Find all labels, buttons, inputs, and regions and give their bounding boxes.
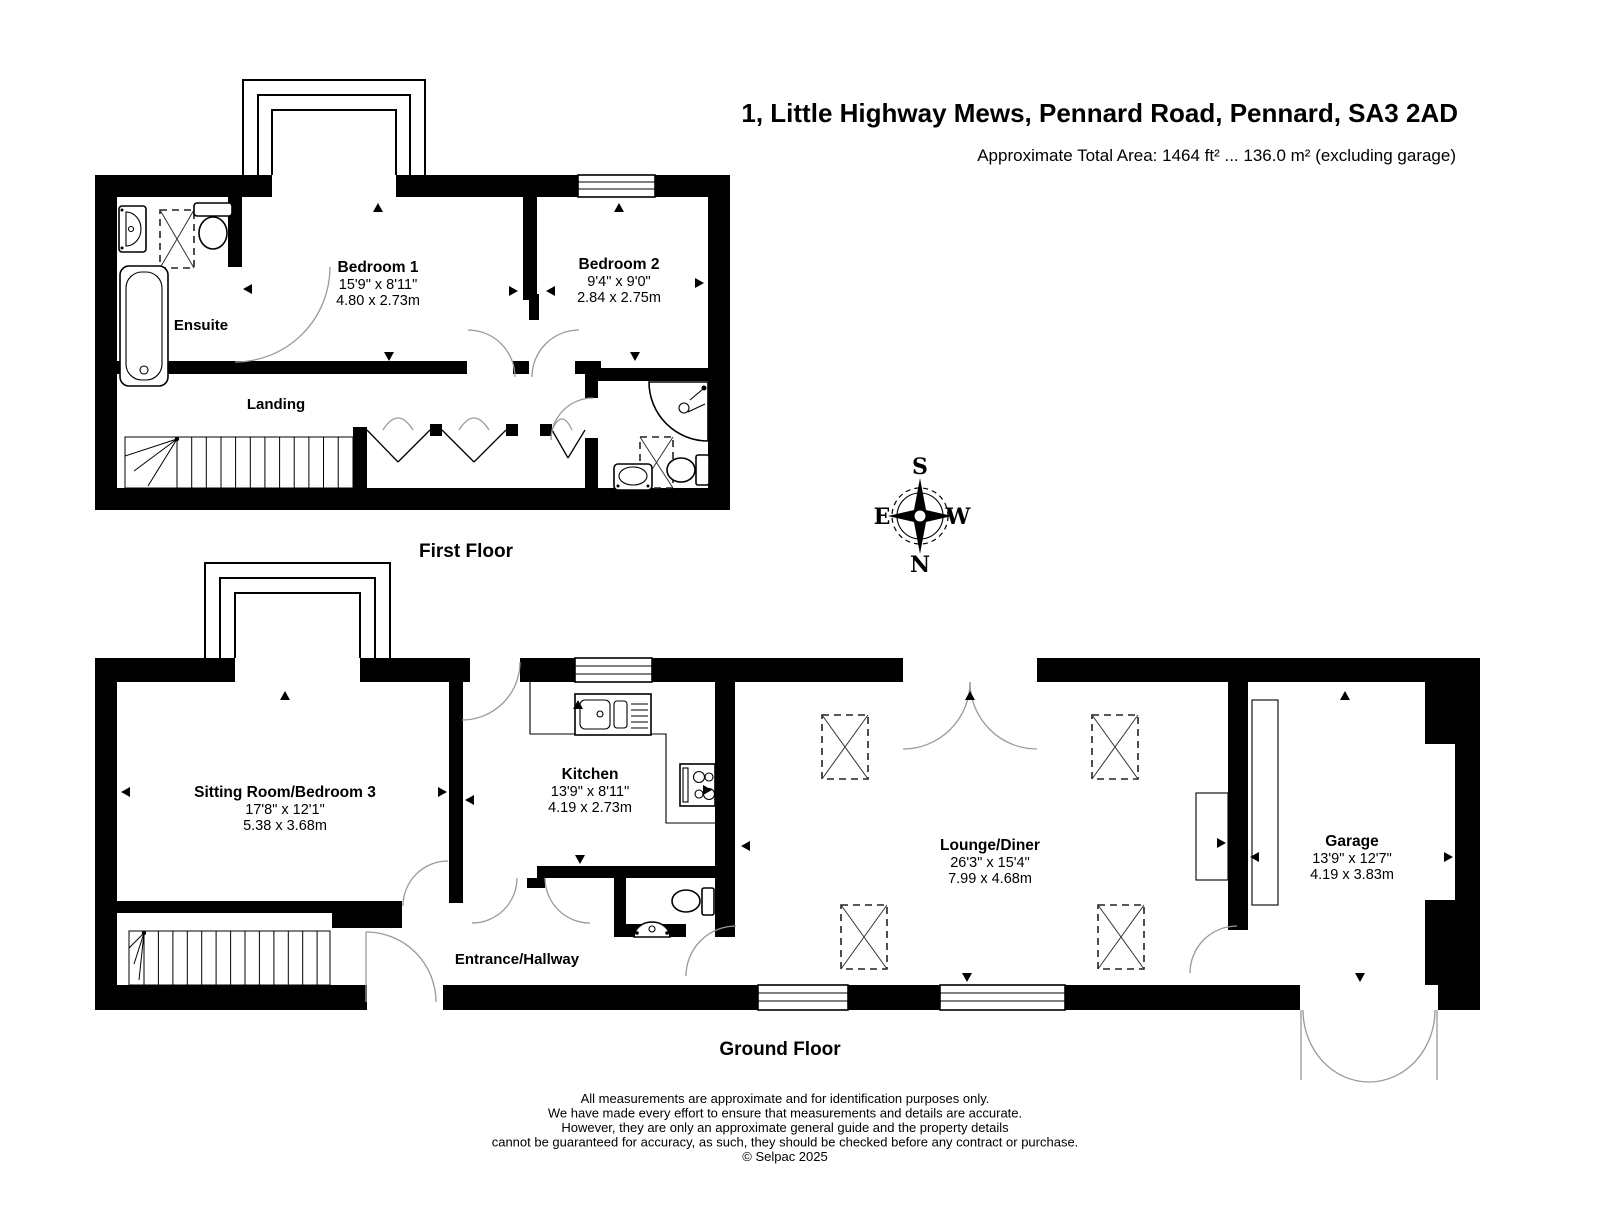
kitchen-hob-icon (680, 764, 715, 806)
bathroom-sink-icon (614, 464, 652, 490)
lounge-diner-imperial: 26'3" x 15'4" (950, 855, 1030, 871)
stairs-ground-floor (129, 931, 330, 985)
ensuite-sink-icon (119, 206, 146, 252)
bathroom-corner-shower-icon (649, 382, 708, 441)
compass-north: N (910, 552, 930, 578)
bay-window-first-floor (243, 80, 425, 175)
bay-window-ground-floor (205, 563, 390, 658)
entrance-hallway-label: Entrance/Hallway (455, 951, 580, 968)
lounge-diner-metric: 7.99 x 4.68m (948, 871, 1032, 887)
bedroom1-imperial: 15'9" x 8'11" (339, 277, 417, 293)
ensuite-bath-icon (120, 266, 168, 386)
wc-toilet-icon (672, 888, 714, 915)
landing-label: Landing (247, 396, 305, 413)
lounge-diner-label: Lounge/Diner (940, 837, 1040, 854)
disclaimer-line-2: We have made every effort to ensure that… (548, 1106, 1022, 1121)
ground-floor-title: Ground Floor (719, 1039, 841, 1060)
window-first-floor-top (578, 175, 655, 197)
first-floor-plan: Bedroom 1 15'9" x 8'11" 4.80 x 2.73m Bed… (95, 80, 730, 562)
floorplan-drawing: 1, Little Highway Mews, Pennard Road, Pe… (0, 0, 1600, 1211)
disclaimer-line-1: All measurements are approximate and for… (581, 1091, 990, 1106)
ensuite-label: Ensuite (174, 317, 228, 334)
garage-label: Garage (1325, 833, 1379, 850)
sitting-room-label: Sitting Room/Bedroom 3 (194, 784, 376, 801)
bedroom2-label: Bedroom 2 (579, 256, 660, 273)
disclaimer-line-3: However, they are only an approximate ge… (561, 1120, 1009, 1135)
compass-rose-icon: S N E W (874, 454, 971, 578)
window-ground-bottom-left (758, 985, 848, 1010)
kitchen-metric: 4.19 x 2.73m (548, 800, 632, 816)
page-title: 1, Little Highway Mews, Pennard Road, Pe… (741, 98, 1458, 128)
ground-floor-plan: Sitting Room/Bedroom 3 17'8" x 12'1" 5.3… (95, 563, 1480, 1082)
garage-metric: 4.19 x 3.83m (1310, 867, 1394, 883)
kitchen-imperial: 13'9" x 8'11" (551, 784, 629, 800)
bedroom1-metric: 4.80 x 2.73m (336, 293, 420, 309)
ground-floor-door-arcs (366, 662, 1437, 1082)
first-floor-title: First Floor (419, 541, 514, 562)
sitting-room-imperial: 17'8" x 12'1" (245, 802, 325, 818)
copyright-line: © Selpac 2025 (742, 1149, 827, 1164)
ensuite-toilet-icon (194, 203, 232, 249)
disclaimer-line-4: cannot be guaranteed for accuracy, as su… (492, 1135, 1079, 1150)
ground-floor-dimension-arrows (121, 691, 1453, 982)
kitchen-sink-icon (575, 694, 651, 735)
compass-south: S (912, 454, 928, 480)
bedroom2-imperial: 9'4" x 9'0" (587, 274, 650, 290)
window-ground-bottom-center (940, 985, 1065, 1010)
total-area-note: Approximate Total Area: 1464 ft² ... 136… (977, 146, 1456, 165)
stairs-first-floor (125, 437, 353, 488)
compass-west: W (945, 504, 971, 530)
ensuite-shower-icon (160, 210, 194, 268)
lounge-chimney-breast (1196, 793, 1228, 880)
first-floor-walls (95, 175, 730, 510)
sitting-room-metric: 5.38 x 3.68m (243, 818, 327, 834)
garage-side-recess (1252, 700, 1278, 905)
bathroom-toilet-icon (667, 455, 709, 485)
garage-imperial: 13'9" x 12'7" (1312, 851, 1392, 867)
landing-closet-doors (367, 418, 585, 462)
bedroom1-label: Bedroom 1 (338, 259, 419, 276)
kitchen-label: Kitchen (562, 766, 619, 783)
window-ground-top (575, 658, 652, 682)
bedroom2-metric: 2.84 x 2.75m (577, 290, 661, 306)
floorplan-page: 1, Little Highway Mews, Pennard Road, Pe… (0, 0, 1600, 1211)
disclaimer: All measurements are approximate and for… (492, 1091, 1079, 1164)
compass-east: E (874, 504, 891, 530)
